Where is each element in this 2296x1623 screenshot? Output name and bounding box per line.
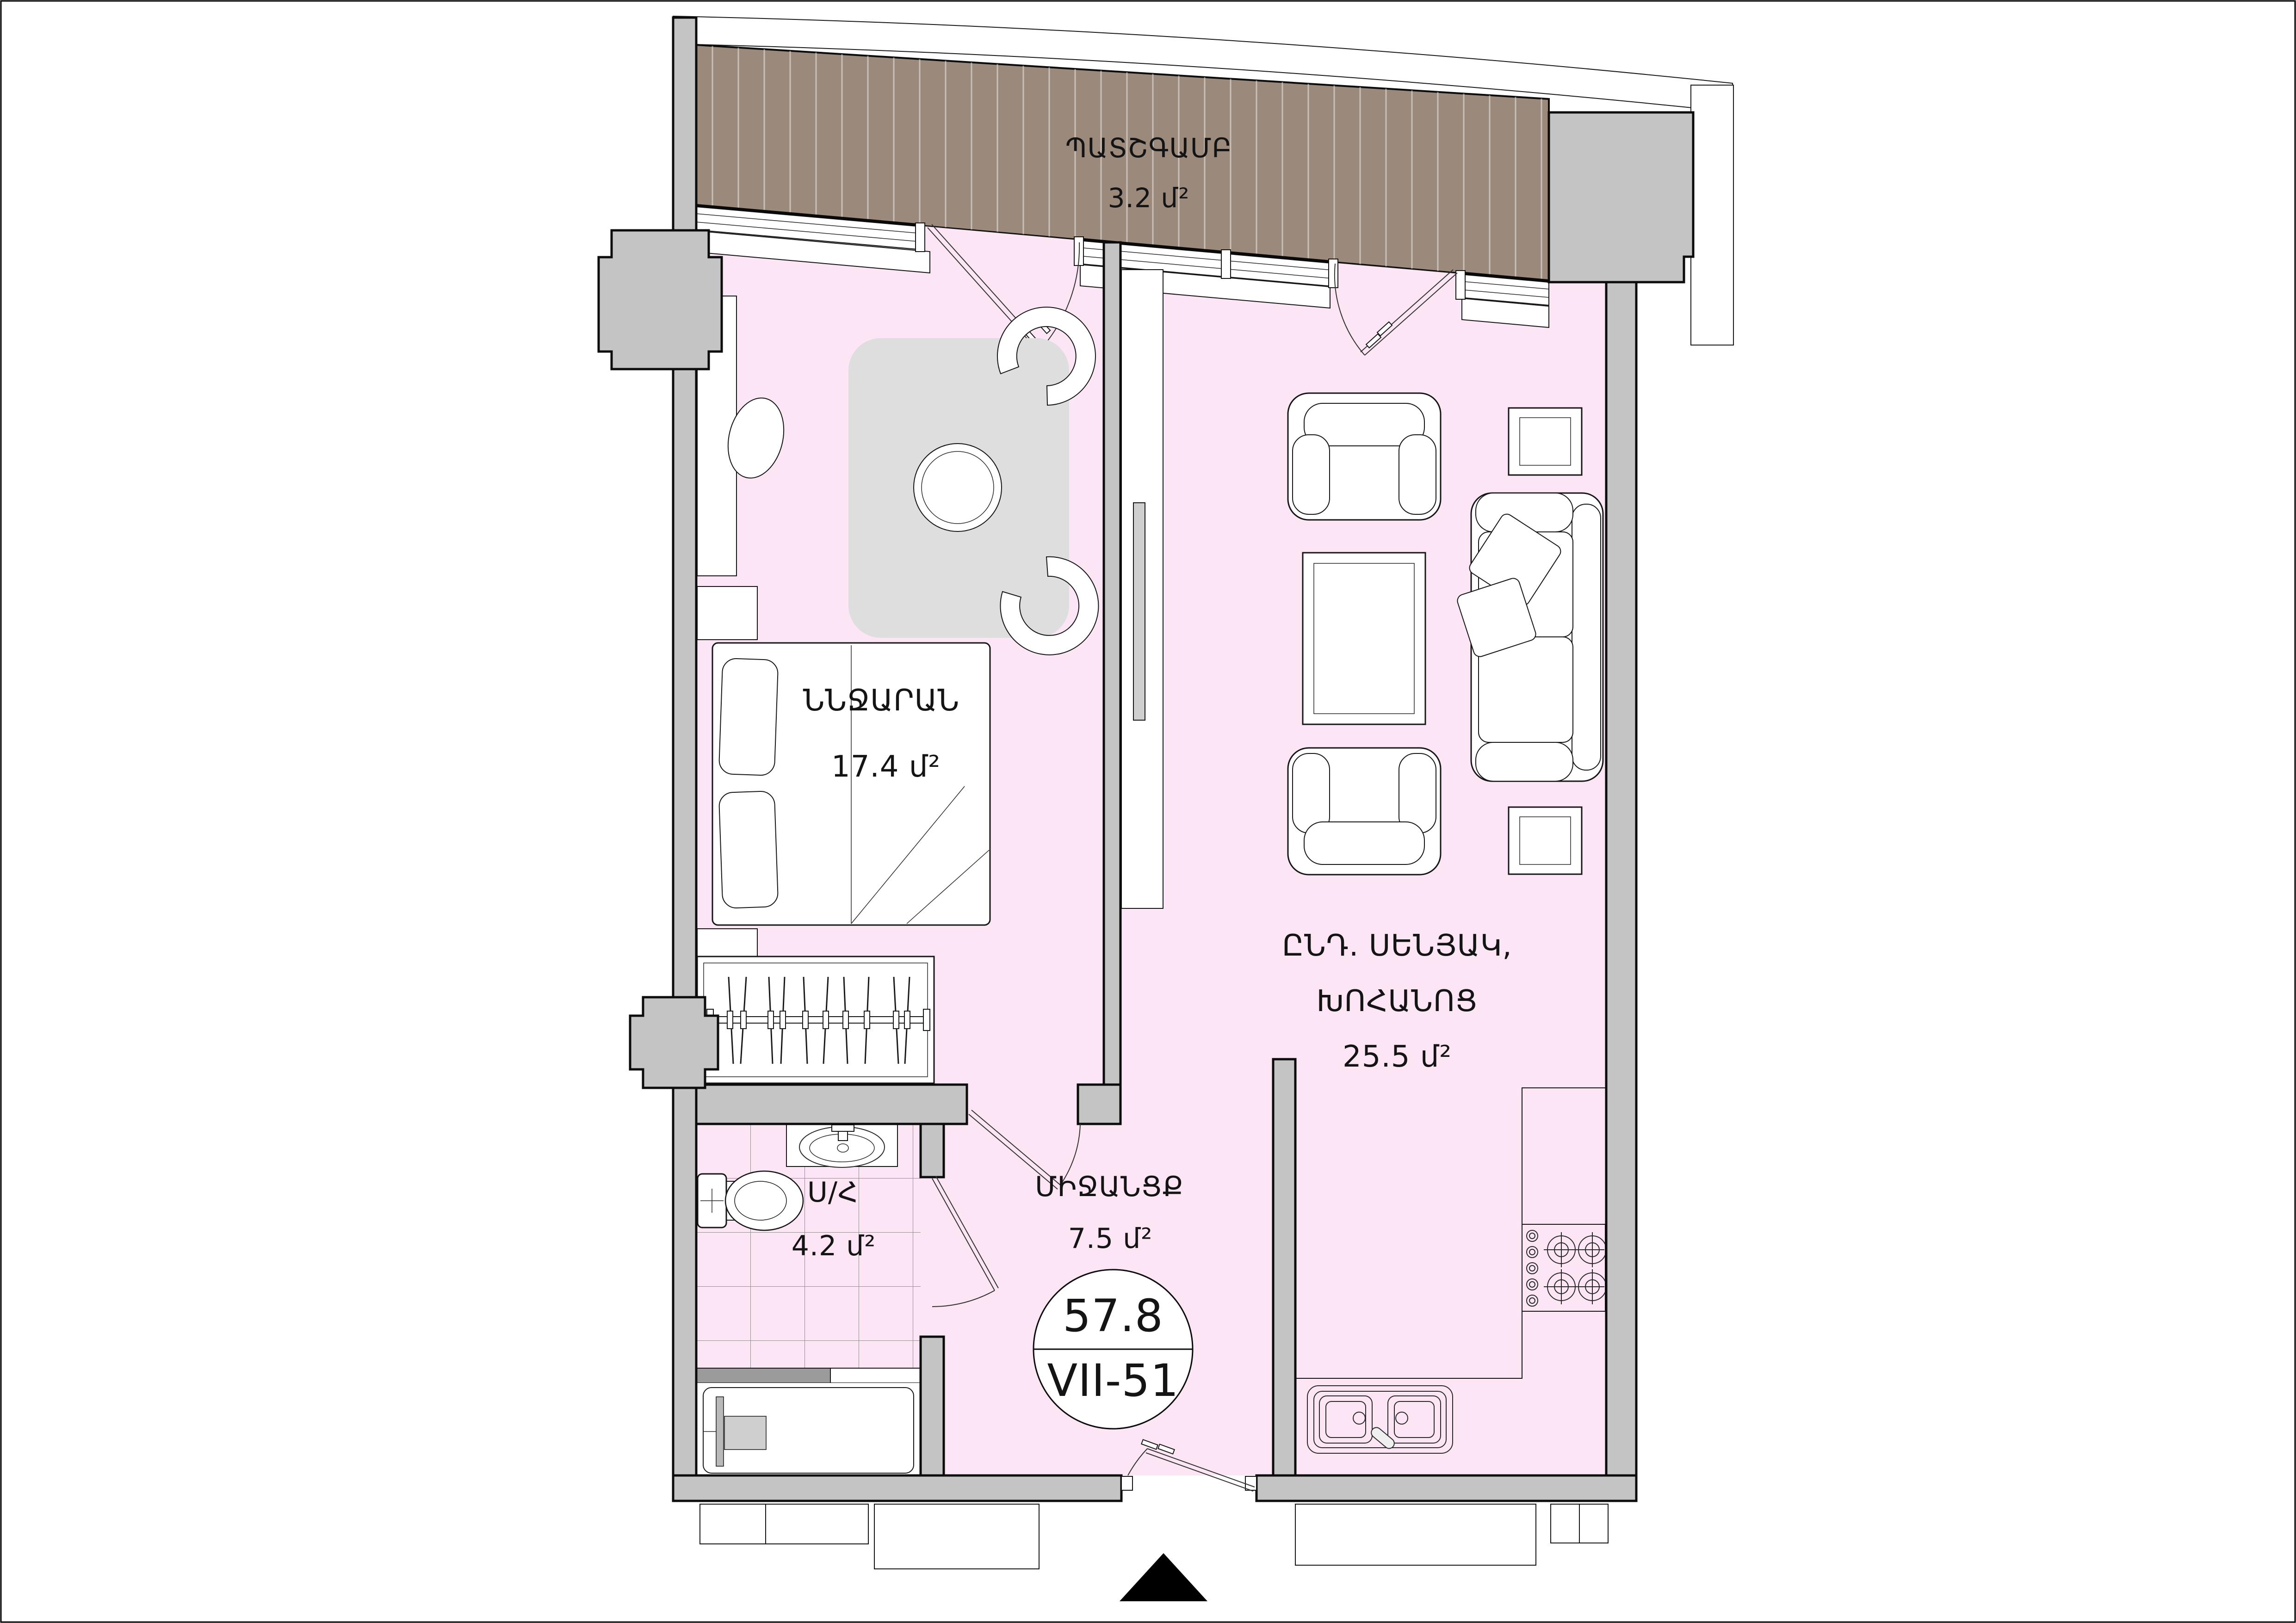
tv-console	[1121, 270, 1163, 908]
side-table-top	[1509, 408, 1582, 475]
bathtub	[696, 1383, 921, 1475]
living-name-label-2: ԽՈՀԱՆՈՑ	[1317, 987, 1478, 1016]
balcony-area-label: 3.2 մ²	[1108, 185, 1190, 211]
round-table	[914, 444, 1002, 531]
living-name-label-1: ԸՆԴ. ՍԵՆՅԱԿ,	[1282, 931, 1512, 961]
threshold	[696, 1368, 830, 1383]
wall-bedroom-bath-right	[1078, 1085, 1120, 1124]
wall-bedroom-bath-left	[696, 1085, 967, 1124]
bathroom-area-label: 4.2 մ²	[792, 1232, 876, 1260]
door-jamb	[1245, 1476, 1256, 1490]
wall-bottom-right	[1256, 1475, 1636, 1501]
toilet-icon	[698, 1171, 803, 1230]
wall-bath-right-lower	[921, 1337, 944, 1475]
bath-sink-icon	[786, 1124, 897, 1167]
column-mid-left	[630, 997, 718, 1088]
north-arrow-icon	[1120, 1553, 1207, 1601]
living-area-label: 25.5 մ²	[1343, 1042, 1452, 1072]
wall-right	[1606, 278, 1636, 1501]
balcony-name-label: ՊԱՏՇԳԱՄԲ	[1065, 135, 1232, 161]
badge-unit-number: VII-51	[1047, 1358, 1179, 1403]
hallway-name-label: ՄԻՋԱՆՑՔ	[1035, 1173, 1184, 1201]
nightstand-top	[697, 586, 757, 640]
floor-plan-page: ՊԱՏՇԳԱՄԲ 3.2 մ² ՆՆՋԱՐԱՆ 17.4 մ² ԸՆԴ. ՍԵՆ…	[0, 0, 2296, 1623]
armchair-bottom	[1288, 748, 1441, 875]
wall-hall-kitchen	[1273, 1059, 1295, 1475]
door-jamb	[1121, 1476, 1133, 1490]
tv	[1133, 503, 1145, 720]
side-table-bottom	[1509, 807, 1582, 874]
hallway-area-label: 7.5 մ²	[1068, 1225, 1153, 1253]
bedroom-name-label: ՆՆՋԱՐԱՆ	[803, 686, 960, 716]
wall-bedroom-living	[1104, 242, 1120, 1085]
exterior-window-marks	[700, 1504, 1608, 1569]
column-top-left	[599, 230, 722, 369]
wall-bath-right-upper	[921, 1124, 944, 1177]
armchair-top	[1288, 393, 1441, 520]
wall-bottom-left	[673, 1475, 1121, 1501]
coffee-table	[1303, 553, 1425, 724]
bedroom-area-label: 17.4 մ²	[831, 752, 941, 782]
sofa	[1456, 493, 1603, 781]
column-top-right	[1549, 112, 1693, 282]
bathroom-name-label: Ս/Հ	[807, 1179, 858, 1206]
wardrobe	[697, 957, 934, 1083]
badge-total-area: 57.8	[1063, 1294, 1163, 1338]
